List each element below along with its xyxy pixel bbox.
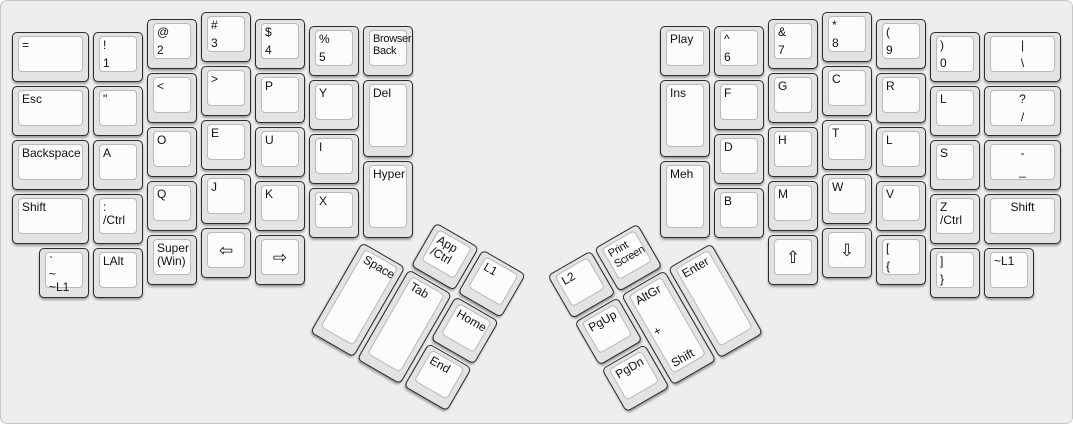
key-g[interactable]: G [768,73,818,123]
key-pipe-backslash-label-bottom: \ [1021,57,1024,70]
keyboard: =!1@2#3$4%5Browser BackEsc"<>PYDelBacksp… [1,1,1072,423]
key-6-cap: ^6 [720,30,758,66]
key-question-slash-label-top: ? [1019,93,1026,106]
key-meh-label-top: Meh [670,168,700,181]
key-z-ctrl-label-top: Z /Ctrl [940,201,970,227]
key-r-label-top: R [886,80,916,93]
key-b[interactable]: B [714,188,764,238]
key-9-label-top: ( [886,26,916,39]
key-arrow-up[interactable]: ⇧ [768,235,818,285]
key-arrow-down[interactable]: ⇩ [822,228,872,278]
key-pipe-backslash[interactable]: |\ [984,32,1061,82]
key-l-home[interactable]: L [876,127,926,177]
key-rbracket-label-bottom: } [940,273,970,286]
key-8-label-bottom: 8 [832,37,862,50]
key-question-slash-label-bottom: / [1021,111,1024,124]
key-7-cap: &7 [774,23,812,59]
key-s-label-top: S [940,147,970,160]
key-g-cap: G [774,77,812,113]
key-h[interactable]: H [768,127,818,177]
key-0[interactable]: )0 [930,32,980,82]
key-tilde-l1[interactable]: ~L1 [984,248,1034,298]
down-arrow-icon: ⇩ [840,244,854,257]
key-play-label-top: Play [670,33,700,46]
key-8-label-top: * [832,19,862,32]
key-0-label-bottom: 0 [940,57,970,70]
key-ins-label-top: Ins [670,87,700,100]
key-7-label-bottom: 7 [778,44,808,57]
key-r-cap: R [882,77,920,113]
key-shift-right-cap: Shift [990,198,1055,234]
key-shift-right[interactable]: Shift [984,194,1061,244]
key-minus-underscore-label-top: - [1021,147,1025,160]
key-rbracket-cap: ]} [936,252,974,288]
key-rbracket[interactable]: ]} [930,248,980,298]
key-z-ctrl[interactable]: Z /Ctrl [930,194,980,244]
key-tilde-l1-label-top: ~L1 [994,255,1024,268]
key-6-label-top: ^ [724,33,754,46]
key-0-label-top: ) [940,39,970,52]
key-f-label-top: F [724,87,754,100]
key-meh[interactable]: Meh [660,161,710,238]
key-b-label-top: B [724,195,754,208]
key-l-upper[interactable]: L [930,86,980,136]
key-m-cap: M [774,185,812,221]
key-l-home-cap: L [882,131,920,167]
key-pipe-backslash-cap: |\ [990,36,1055,72]
key-d[interactable]: D [714,134,764,184]
key-6[interactable]: ^6 [714,26,764,76]
key-6-label-bottom: 6 [724,51,754,64]
key-c[interactable]: C [822,66,872,116]
up-arrow-icon: ⇧ [786,251,800,264]
key-question-slash-cap: ?/ [990,90,1055,126]
key-meh-cap: Meh [666,165,704,228]
key-9-cap: (9 [882,23,920,59]
key-8-cap: *8 [828,16,866,52]
key-l-upper-cap: L [936,90,974,126]
key-arrow-up-cap: ⇧ [774,239,812,275]
key-t-cap: T [828,124,866,160]
key-d-label-top: D [724,141,754,154]
key-v-cap: V [882,185,920,221]
key-7-label-top: & [778,26,808,39]
key-minus-underscore-label-bottom: _ [1019,165,1026,178]
key-lbracket-label-top: [ [886,242,916,255]
key-rbracket-label-top: ] [940,255,970,268]
key-7[interactable]: &7 [768,19,818,69]
key-question-slash[interactable]: ?/ [984,86,1061,136]
key-s-cap: S [936,144,974,180]
key-z-ctrl-cap: Z /Ctrl [936,198,974,234]
key-s[interactable]: S [930,140,980,190]
key-g-label-top: G [778,80,808,93]
key-arrow-down-cap: ⇩ [828,232,866,268]
key-w-cap: W [828,178,866,214]
key-play[interactable]: Play [660,26,710,76]
key-h-label-top: H [778,134,808,147]
key-w[interactable]: W [822,174,872,224]
key-f[interactable]: F [714,80,764,130]
key-d-cap: D [720,138,758,174]
key-m[interactable]: M [768,181,818,231]
key-v[interactable]: V [876,181,926,231]
key-ins[interactable]: Ins [660,80,710,157]
key-lbracket-cap: [{ [882,239,920,275]
key-w-label-top: W [832,181,862,194]
key-ins-cap: Ins [666,84,704,147]
key-lbracket-label-bottom: { [886,260,916,273]
key-c-cap: C [828,70,866,106]
key-r[interactable]: R [876,73,926,123]
key-b-cap: B [720,192,758,228]
key-minus-underscore[interactable]: -_ [984,140,1061,190]
key-c-label-top: C [832,73,862,86]
key-l-upper-label-top: L [940,93,970,106]
key-8[interactable]: *8 [822,12,872,62]
key-0-cap: )0 [936,36,974,72]
key-t[interactable]: T [822,120,872,170]
key-f-cap: F [720,84,758,120]
key-m-label-top: M [778,188,808,201]
key-pipe-backslash-label-top: | [1021,39,1024,52]
key-tilde-l1-cap: ~L1 [990,252,1028,288]
key-minus-underscore-cap: -_ [990,144,1055,180]
key-lbracket[interactable]: [{ [876,235,926,285]
right-main: Play^6&7*8(9)0|\InsFGCRL?/MehDHTLS-_BMWV… [1,1,1072,423]
key-h-cap: H [774,131,812,167]
key-9-label-bottom: 9 [886,44,916,57]
key-l-home-label-top: L [886,134,916,147]
key-play-cap: Play [666,30,704,66]
key-v-label-top: V [886,188,916,201]
key-shift-right-label-top: Shift [1010,201,1034,214]
key-9[interactable]: (9 [876,19,926,69]
key-t-label-top: T [832,127,862,140]
keyboard-layout-canvas: =!1@2#3$4%5Browser BackEsc"<>PYDelBacksp… [0,0,1073,424]
